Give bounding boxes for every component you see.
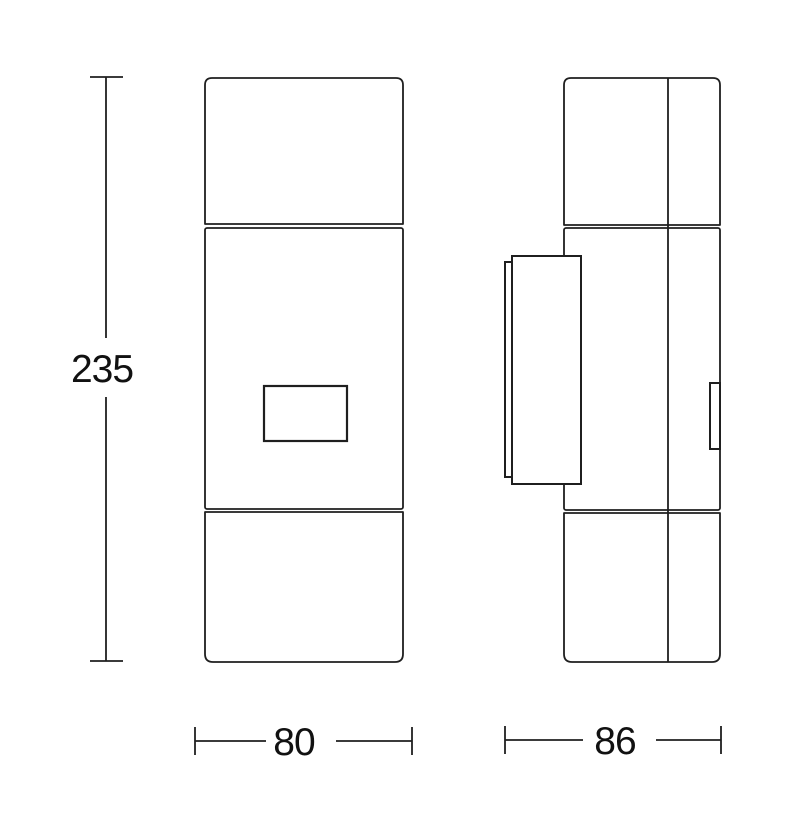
dimension-height: 235	[71, 77, 133, 661]
side-bottom-section	[564, 513, 720, 662]
height-dimension-label: 235	[71, 348, 133, 391]
front-view	[205, 78, 403, 662]
front-bottom-section	[205, 512, 403, 662]
dimension-width: 80	[195, 721, 412, 764]
front-body-section	[205, 228, 403, 509]
drawing-canvas: 235 80 86	[0, 0, 796, 826]
side-body-section	[564, 228, 720, 510]
side-top-section	[564, 78, 720, 225]
dimension-depth: 86	[505, 720, 721, 763]
width-dimension-label: 80	[273, 721, 315, 764]
depth-dimension-label: 86	[594, 720, 635, 763]
mounting-clip	[710, 383, 720, 449]
front-sensor-window	[264, 386, 347, 441]
dimension-drawing: 235 80 86	[0, 0, 796, 826]
front-top-section	[205, 78, 403, 224]
sensor-housing	[512, 256, 581, 484]
side-view	[505, 78, 720, 662]
